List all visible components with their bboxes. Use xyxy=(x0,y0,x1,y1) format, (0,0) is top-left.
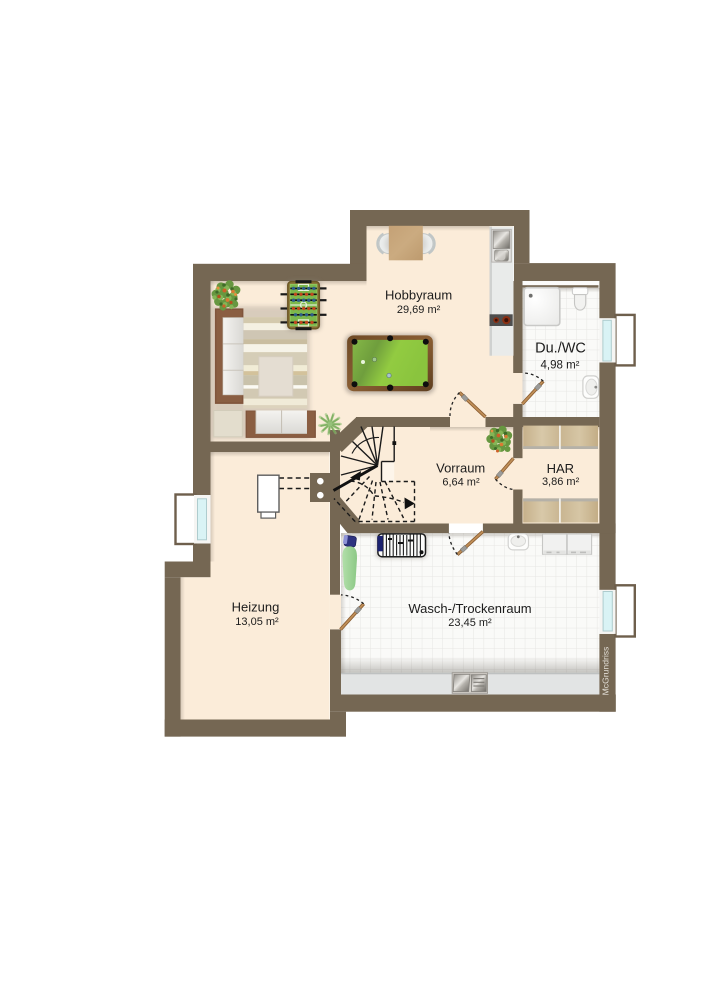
svg-text:4,98 m²: 4,98 m² xyxy=(541,360,580,372)
svg-text:McGrundriss: McGrundriss xyxy=(601,647,611,696)
svg-text:Wasch-/Trockenraum: Wasch-/Trockenraum xyxy=(408,601,531,616)
svg-text:Vorraum: Vorraum xyxy=(436,461,485,476)
svg-text:6,64 m²: 6,64 m² xyxy=(442,477,480,489)
svg-text:3,86 m²: 3,86 m² xyxy=(542,476,580,488)
svg-text:13,05 m²: 13,05 m² xyxy=(235,616,279,628)
svg-text:23,45 m²: 23,45 m² xyxy=(448,617,492,629)
svg-text:Hobbyraum: Hobbyraum xyxy=(385,288,452,303)
svg-text:Heizung: Heizung xyxy=(232,600,280,615)
svg-text:29,69 m²: 29,69 m² xyxy=(397,304,441,316)
svg-text:HAR: HAR xyxy=(547,461,574,476)
svg-text:Du./WC: Du./WC xyxy=(535,341,586,357)
